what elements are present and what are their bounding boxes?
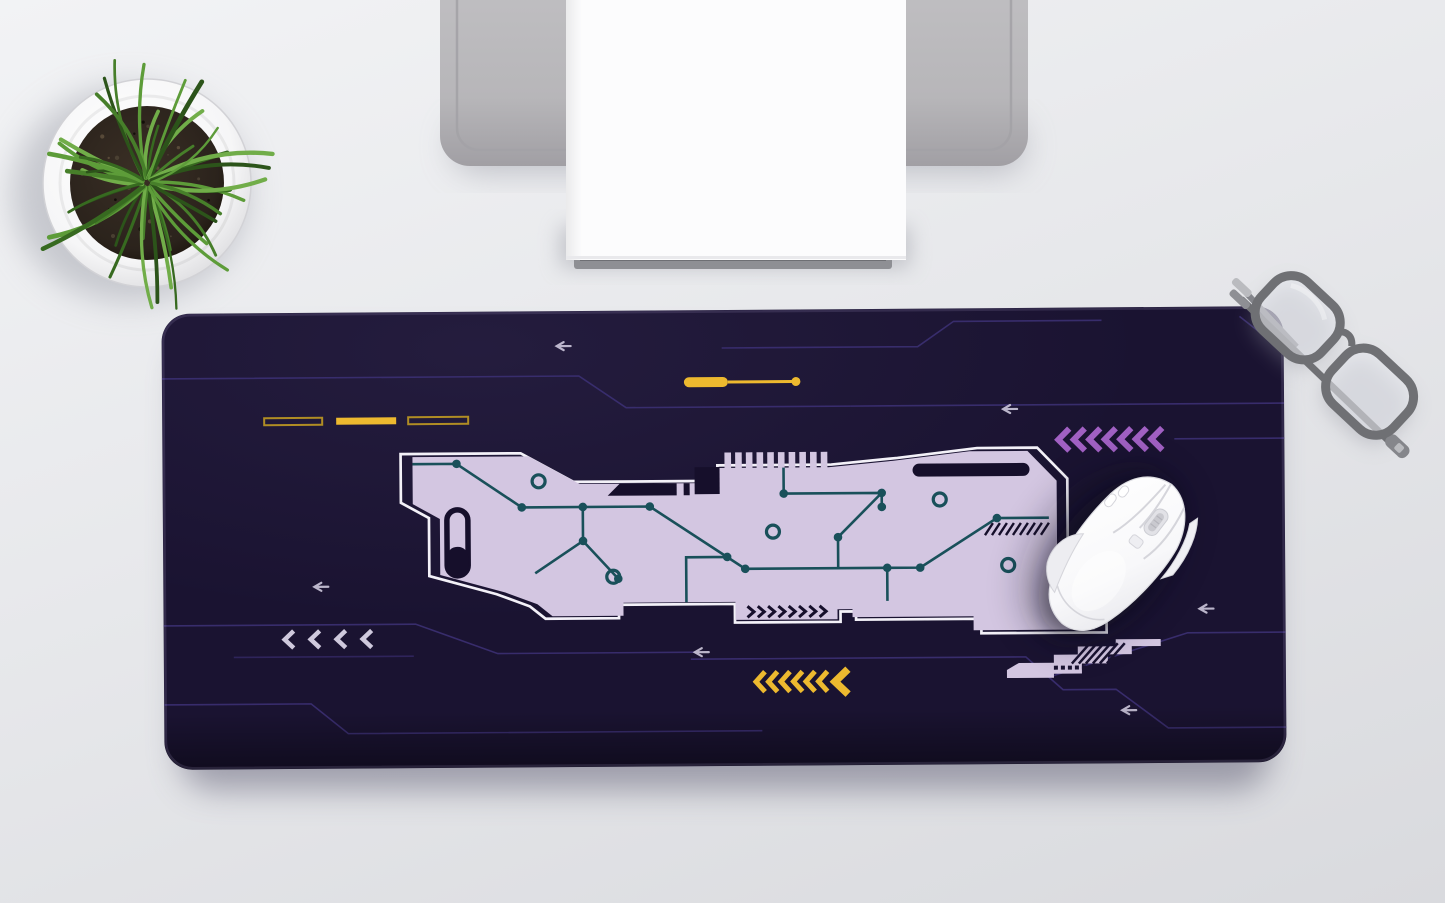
- paper-sheet: [566, 0, 906, 260]
- top-notch: [695, 467, 720, 494]
- desk-mat: [161, 306, 1286, 770]
- rounded-slot: [912, 463, 1029, 477]
- desk-scene: [0, 0, 1445, 903]
- printer: [440, 0, 1028, 269]
- pin-bar-tail: [728, 380, 792, 383]
- paper-bottom-line: [566, 256, 906, 259]
- potted-plant: [12, 60, 273, 308]
- small-bar: [684, 483, 690, 495]
- mat-bottom-shade: [164, 706, 1286, 770]
- pin-bar-dot: [791, 377, 800, 386]
- glasses-lens-right: [1316, 338, 1424, 445]
- paper-edge-shade: [566, 0, 582, 260]
- pill-bottom-fill: [447, 547, 468, 576]
- pin-bar-head: [684, 377, 728, 387]
